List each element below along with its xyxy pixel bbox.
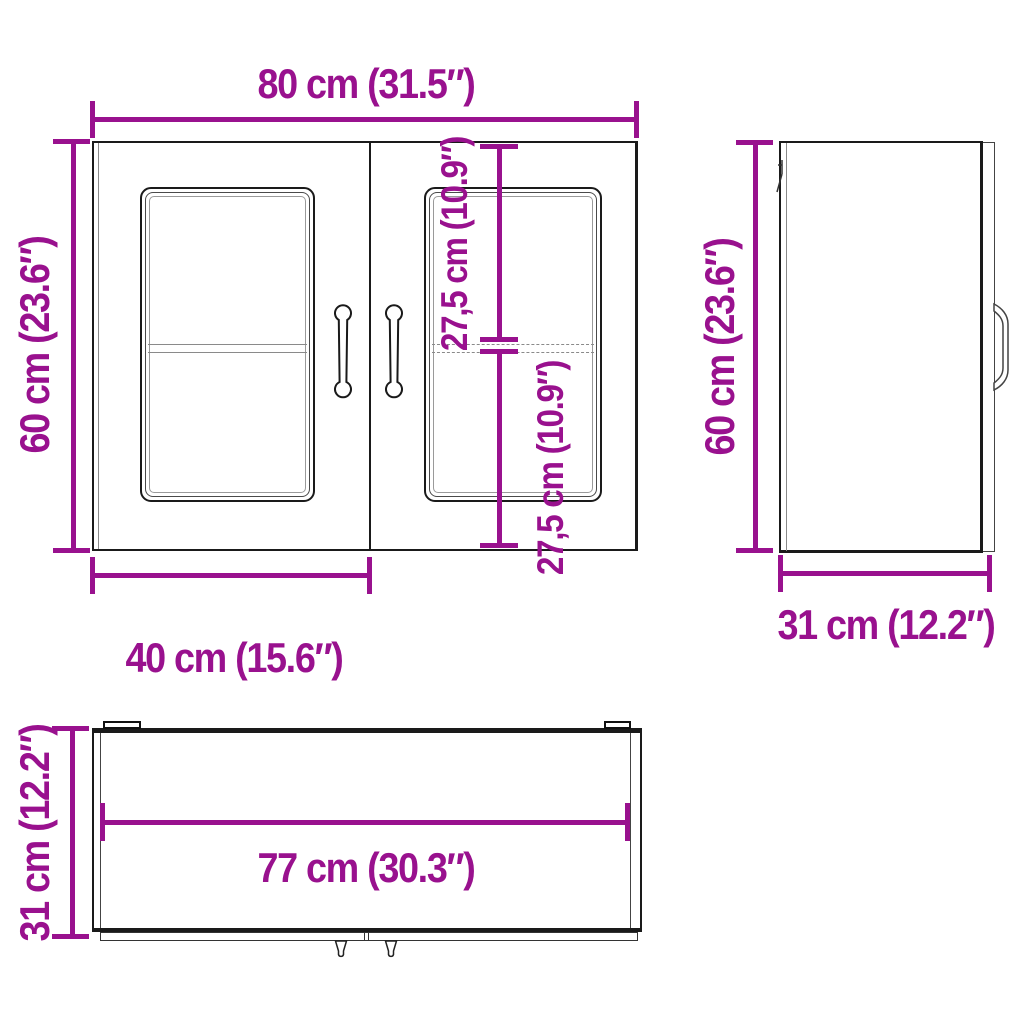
upper-compartment-dim-line <box>497 146 502 341</box>
lower-compartment-tick-bottom <box>480 543 518 548</box>
lower-compartment-tick-top <box>480 349 518 354</box>
side-height-dim-tick-top <box>736 140 773 145</box>
side-height-dim-tick-bottom <box>736 548 773 553</box>
left-shelf-line-upper <box>148 344 307 345</box>
top-depth-dim-line <box>70 728 75 938</box>
front-height-dim-tick-bottom <box>53 548 90 553</box>
left-door-glass-panel <box>140 187 315 502</box>
top-view-hinge-plate-left <box>103 721 141 729</box>
top-view-hinge-plate-right <box>604 721 631 729</box>
side-height-dim-line <box>753 142 758 553</box>
door-width-label: 40 cm (15.6″) <box>126 634 343 682</box>
door-strip-split-left <box>364 933 365 940</box>
side-depth-dim-tick-right <box>987 555 992 592</box>
top-view-door-front-strip <box>100 932 638 941</box>
front-view-center-divider <box>369 143 371 549</box>
door-width-dim-line <box>92 573 372 578</box>
side-view-inner-left-line <box>786 143 787 551</box>
front-height-label: 60 cm (23.6″) <box>11 237 59 454</box>
front-width-dim-tick-left <box>90 101 95 138</box>
top-inner-width-tick-left <box>100 803 105 841</box>
door-width-dim-tick-left <box>90 557 95 594</box>
side-depth-label: 31 cm (12.2″) <box>778 601 995 649</box>
top-view-cabinet-outline <box>92 728 642 932</box>
top-view-inner-right-line <box>630 733 631 928</box>
upper-compartment-tick-top <box>480 144 518 149</box>
side-door-handle <box>994 301 1014 393</box>
side-depth-dim-tick-left <box>778 555 783 592</box>
top-inner-width-tick-right <box>625 803 630 841</box>
side-hinge-mark <box>774 160 786 198</box>
side-view-cabinet-outline <box>779 141 983 553</box>
lower-compartment-label: 27,5 cm (10.9″) <box>530 361 572 575</box>
front-height-dim-line <box>71 141 76 552</box>
upper-compartment-tick-bottom <box>480 337 518 342</box>
cabinet-dimension-diagram: 80 cm (31.5″) 60 cm (23.6″) 27,5 cm (10.… <box>0 0 1024 1024</box>
front-view-inner-left-line <box>98 143 99 549</box>
front-width-dim-tick-right <box>634 101 639 138</box>
top-view-handle-peg-left <box>334 940 348 959</box>
top-inner-width-dim-line <box>102 820 630 825</box>
top-depth-dim-tick-top <box>52 726 89 731</box>
left-shelf-line-lower <box>148 352 307 353</box>
upper-compartment-label: 27,5 cm (10.9″) <box>434 137 476 351</box>
lower-compartment-dim-line <box>497 350 502 548</box>
door-width-dim-tick-right <box>367 557 372 594</box>
side-height-label: 60 cm (23.6″) <box>696 239 744 456</box>
top-depth-dim-tick-bottom <box>52 934 89 939</box>
front-height-dim-tick-top <box>53 139 90 144</box>
side-depth-dim-line <box>780 571 992 576</box>
right-door-handle <box>383 304 405 398</box>
left-door-handle <box>332 304 354 398</box>
top-depth-label: 31 cm (12.2″) <box>11 725 59 942</box>
top-inner-width-label: 77 cm (30.3″) <box>258 844 475 892</box>
door-strip-split-right <box>368 933 369 940</box>
front-width-dim-line <box>92 117 639 122</box>
top-view-handle-peg-right <box>384 940 398 959</box>
front-width-label: 80 cm (31.5″) <box>258 60 475 108</box>
